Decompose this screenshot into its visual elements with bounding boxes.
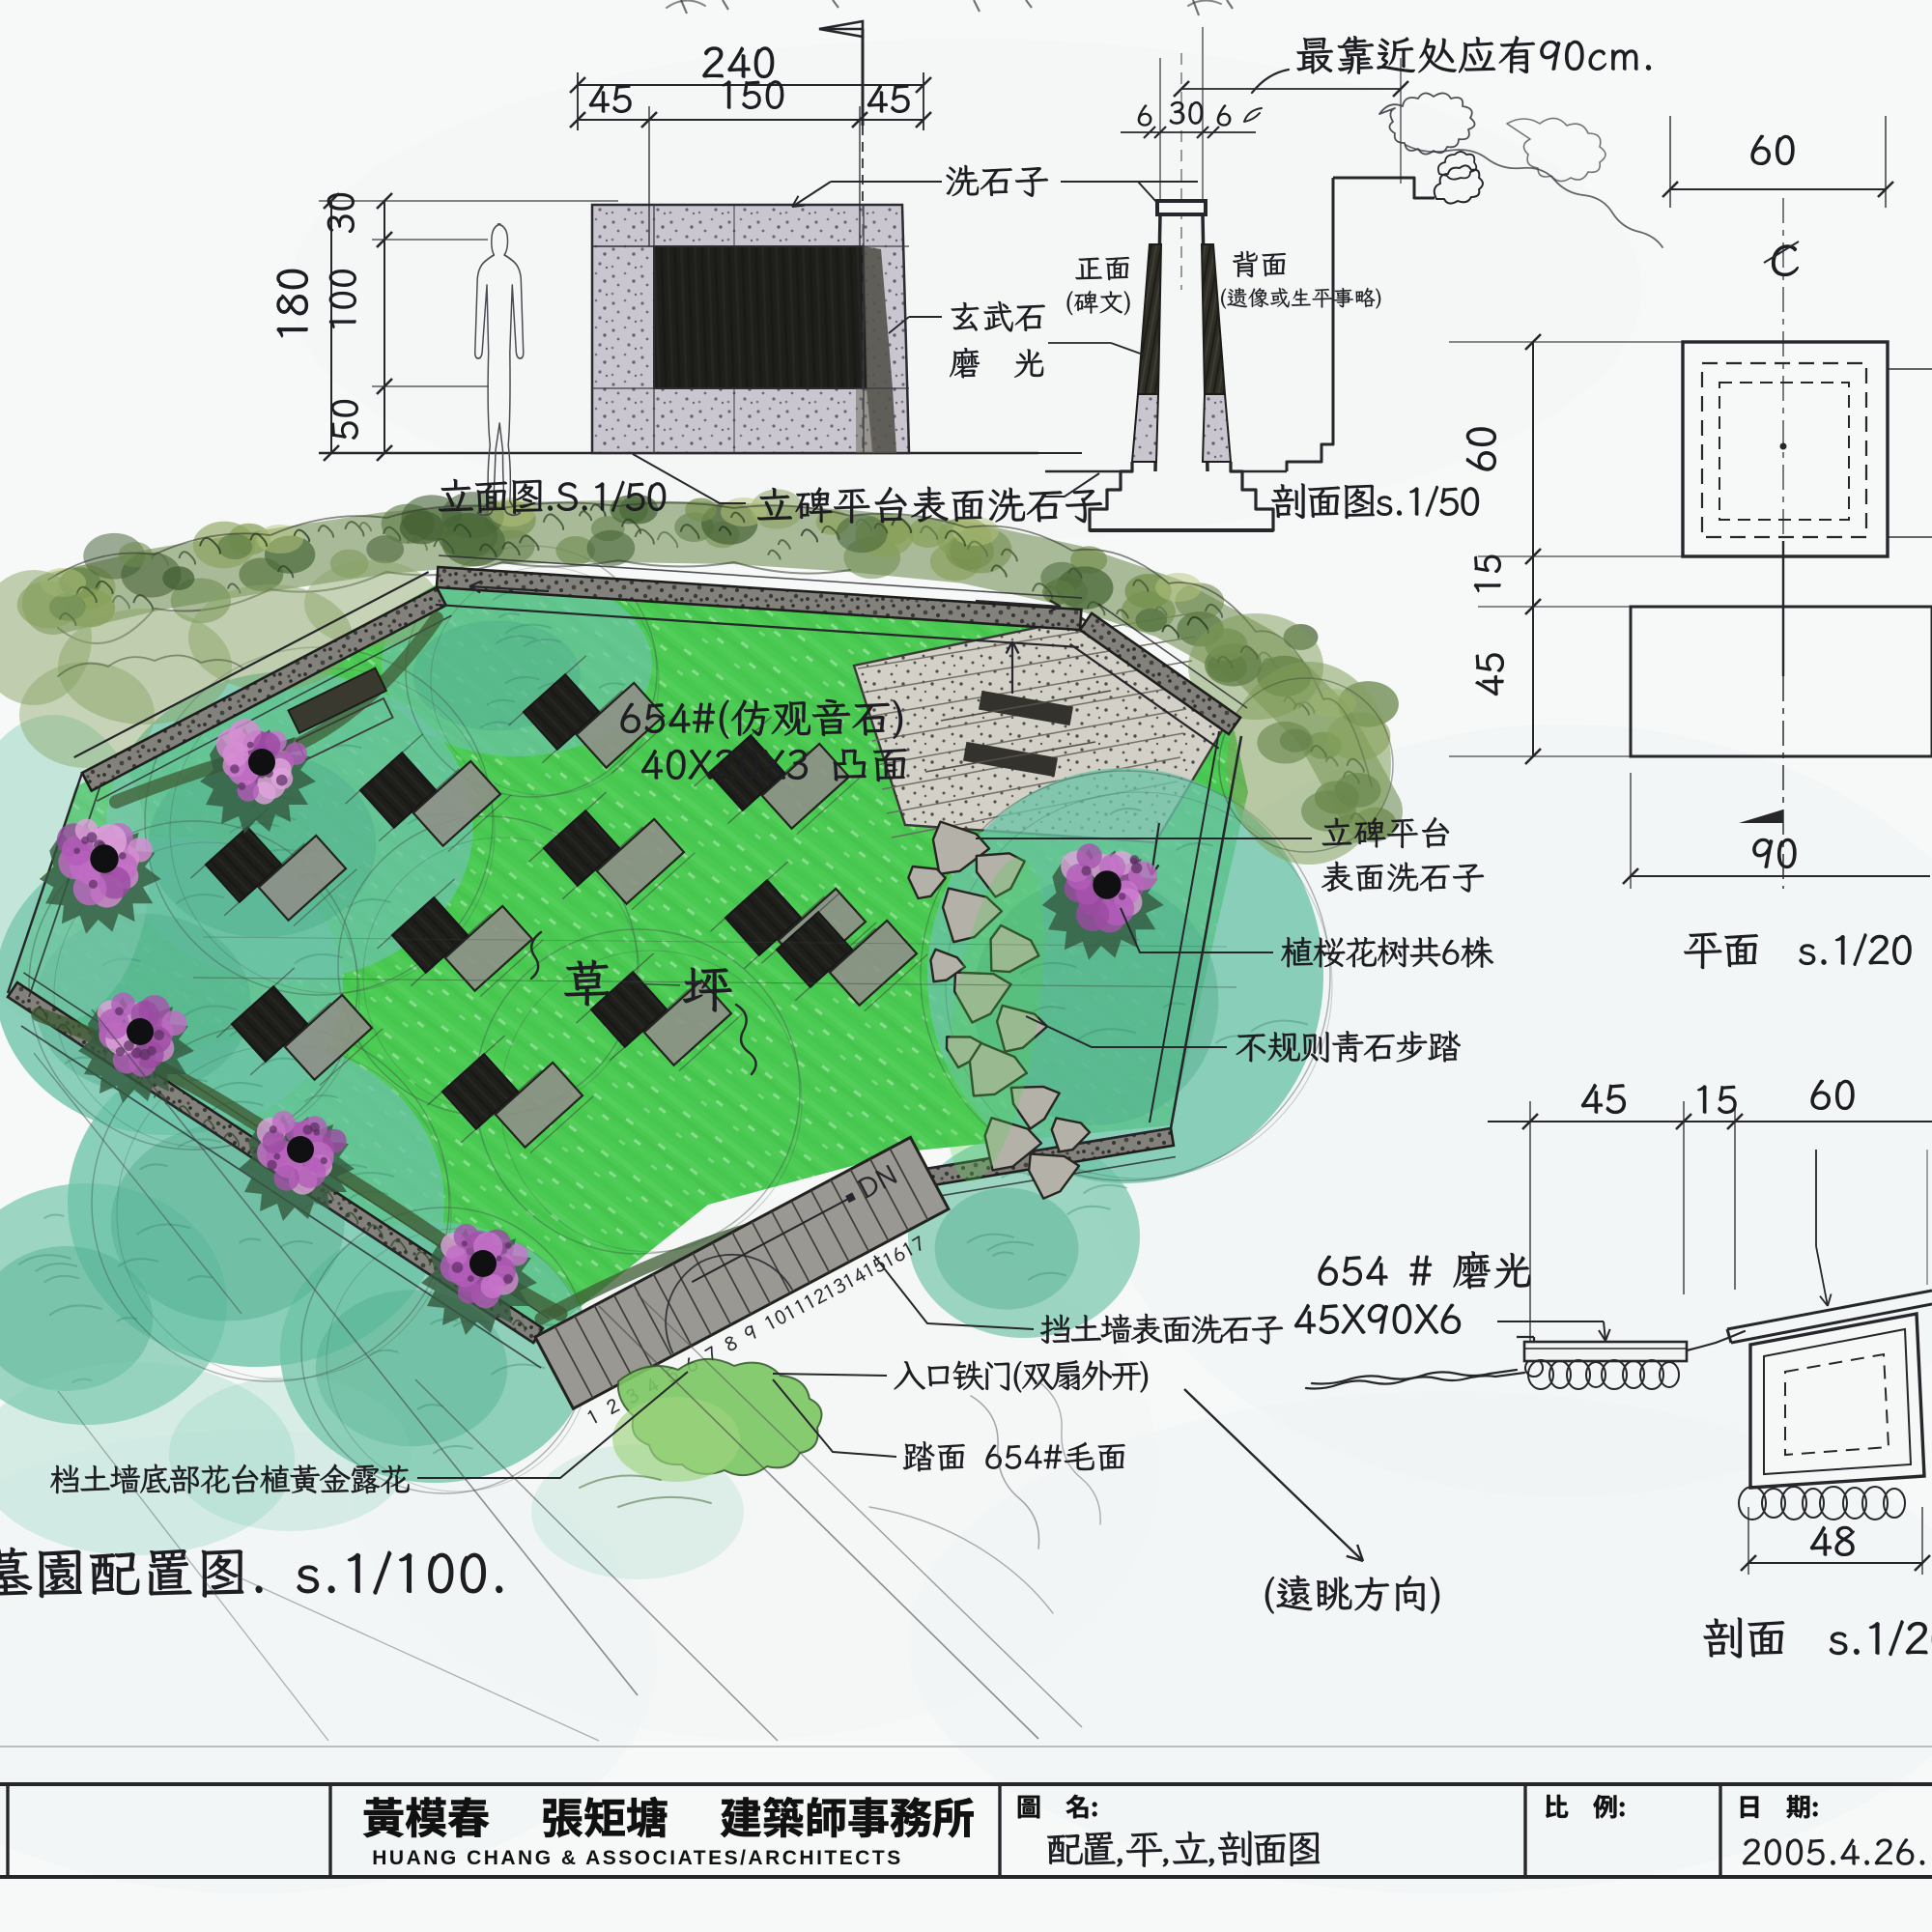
svg-text:HUANG CHANG & ASSOCIATES/ARCHI: HUANG CHANG & ASSOCIATES/ARCHITECTS (372, 1847, 903, 1869)
